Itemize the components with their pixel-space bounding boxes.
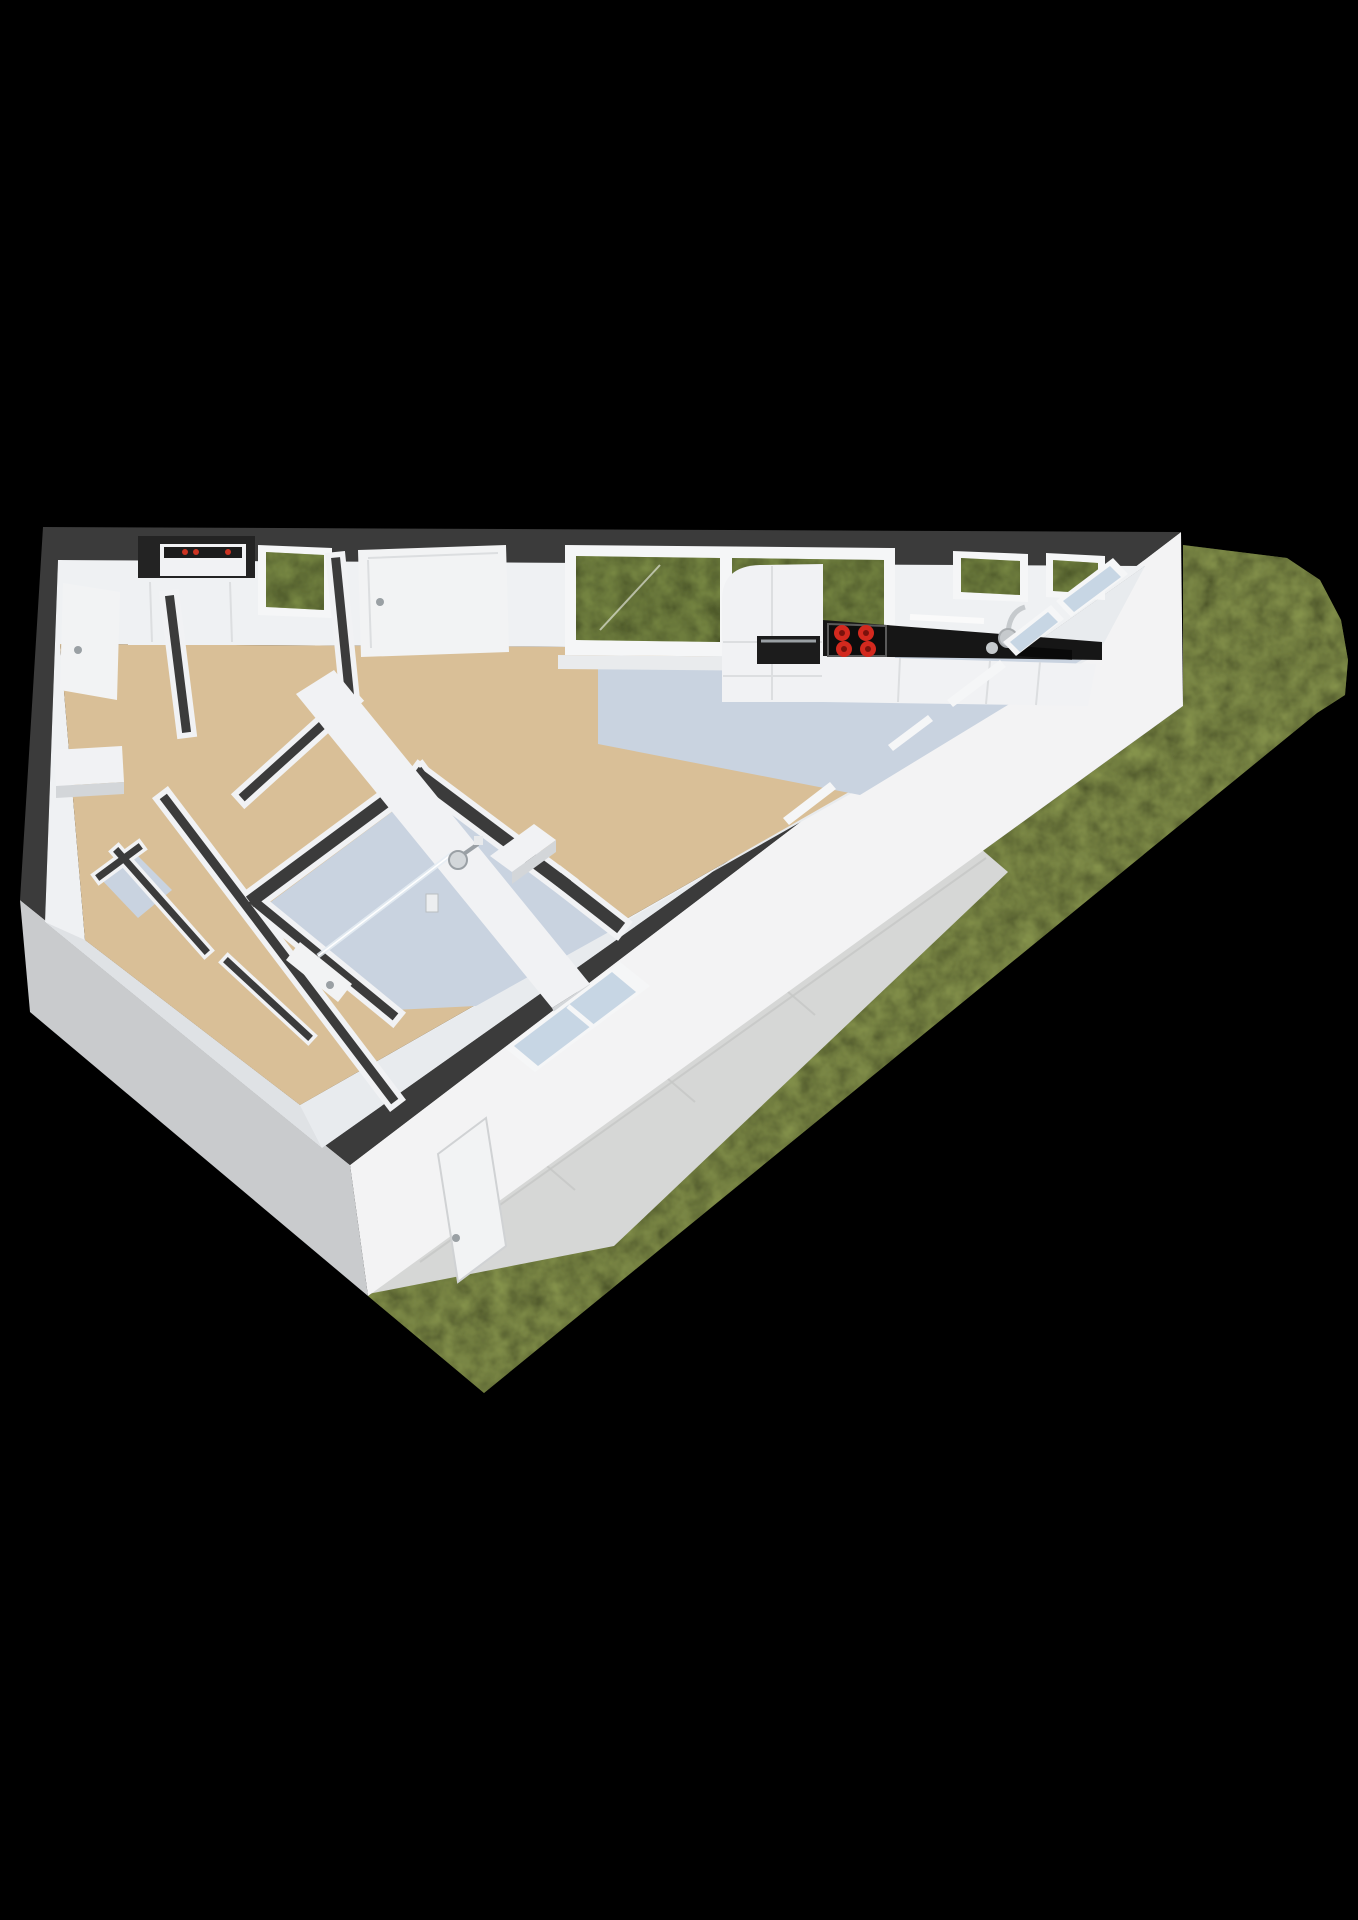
burner-center [863,630,869,636]
burner-center [841,646,847,652]
kitchen-window-left [953,551,1028,602]
burner-center [839,630,845,636]
window-glass-group [961,558,1020,595]
bedroom-window [258,545,332,618]
shower-control-panel [426,894,438,912]
hall-bench [54,746,124,798]
indicator-light [182,549,188,555]
indicator-light [225,549,231,555]
window-pane [961,558,1020,595]
bedroom-door [358,545,509,657]
window-pane [576,556,720,642]
window-pane [266,552,324,610]
bench-top [54,746,124,786]
door-handle [452,1234,460,1242]
cooktop [828,624,886,657]
window-glass-group [266,552,324,610]
door-leaf [60,583,120,700]
floor-plan-3d-render [0,0,1358,1920]
shower-mount [474,836,483,845]
burner-center [865,646,871,652]
door-handle [376,598,384,606]
soap-dispenser [986,642,998,654]
front-door [60,583,120,700]
shower-head [449,851,467,869]
closet-front-wall [128,578,258,645]
backsplash-vent-slit [910,617,984,621]
door-handle [74,646,82,654]
hall-fixtures [54,583,124,798]
indicator-light [193,549,199,555]
door-handle [326,981,334,989]
